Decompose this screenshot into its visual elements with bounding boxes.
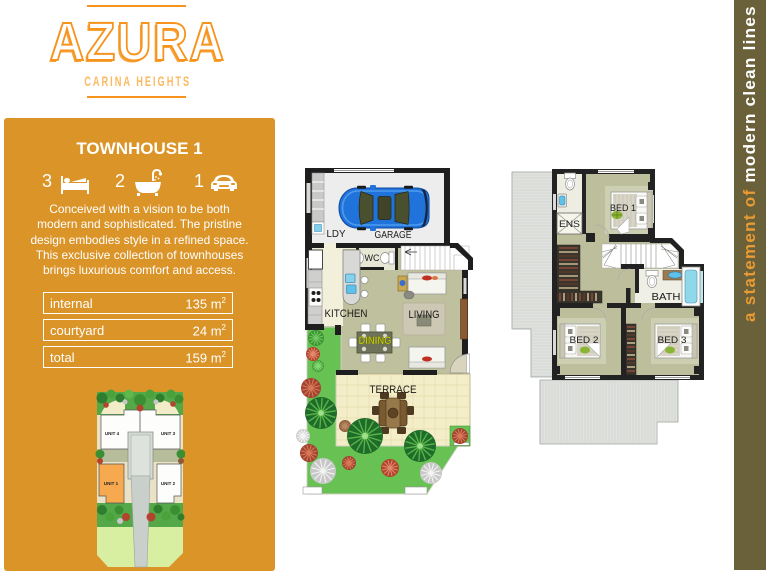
svg-text:LDY: LDY (327, 229, 346, 240)
svg-text:UNIT 3: UNIT 3 (161, 431, 176, 436)
svg-text:UNIT 4: UNIT 4 (105, 431, 120, 436)
svg-text:BED 3: BED 3 (658, 335, 687, 346)
svg-text:UNIT 1: UNIT 1 (104, 481, 119, 486)
svg-text:LIVING: LIVING (409, 309, 440, 321)
svg-text:BATH: BATH (652, 291, 681, 303)
svg-text:GARAGE: GARAGE (375, 229, 412, 241)
svg-text:WC: WC (365, 253, 380, 264)
svg-text:ENS: ENS (559, 219, 580, 230)
svg-text:KITCHEN: KITCHEN (325, 308, 368, 320)
svg-text:BED 1: BED 1 (610, 203, 636, 214)
svg-text:DINING: DINING (359, 335, 392, 347)
svg-text:TERRACE: TERRACE (370, 384, 417, 396)
svg-text:UNIT 2: UNIT 2 (161, 481, 176, 486)
svg-text:BED 2: BED 2 (570, 335, 599, 346)
